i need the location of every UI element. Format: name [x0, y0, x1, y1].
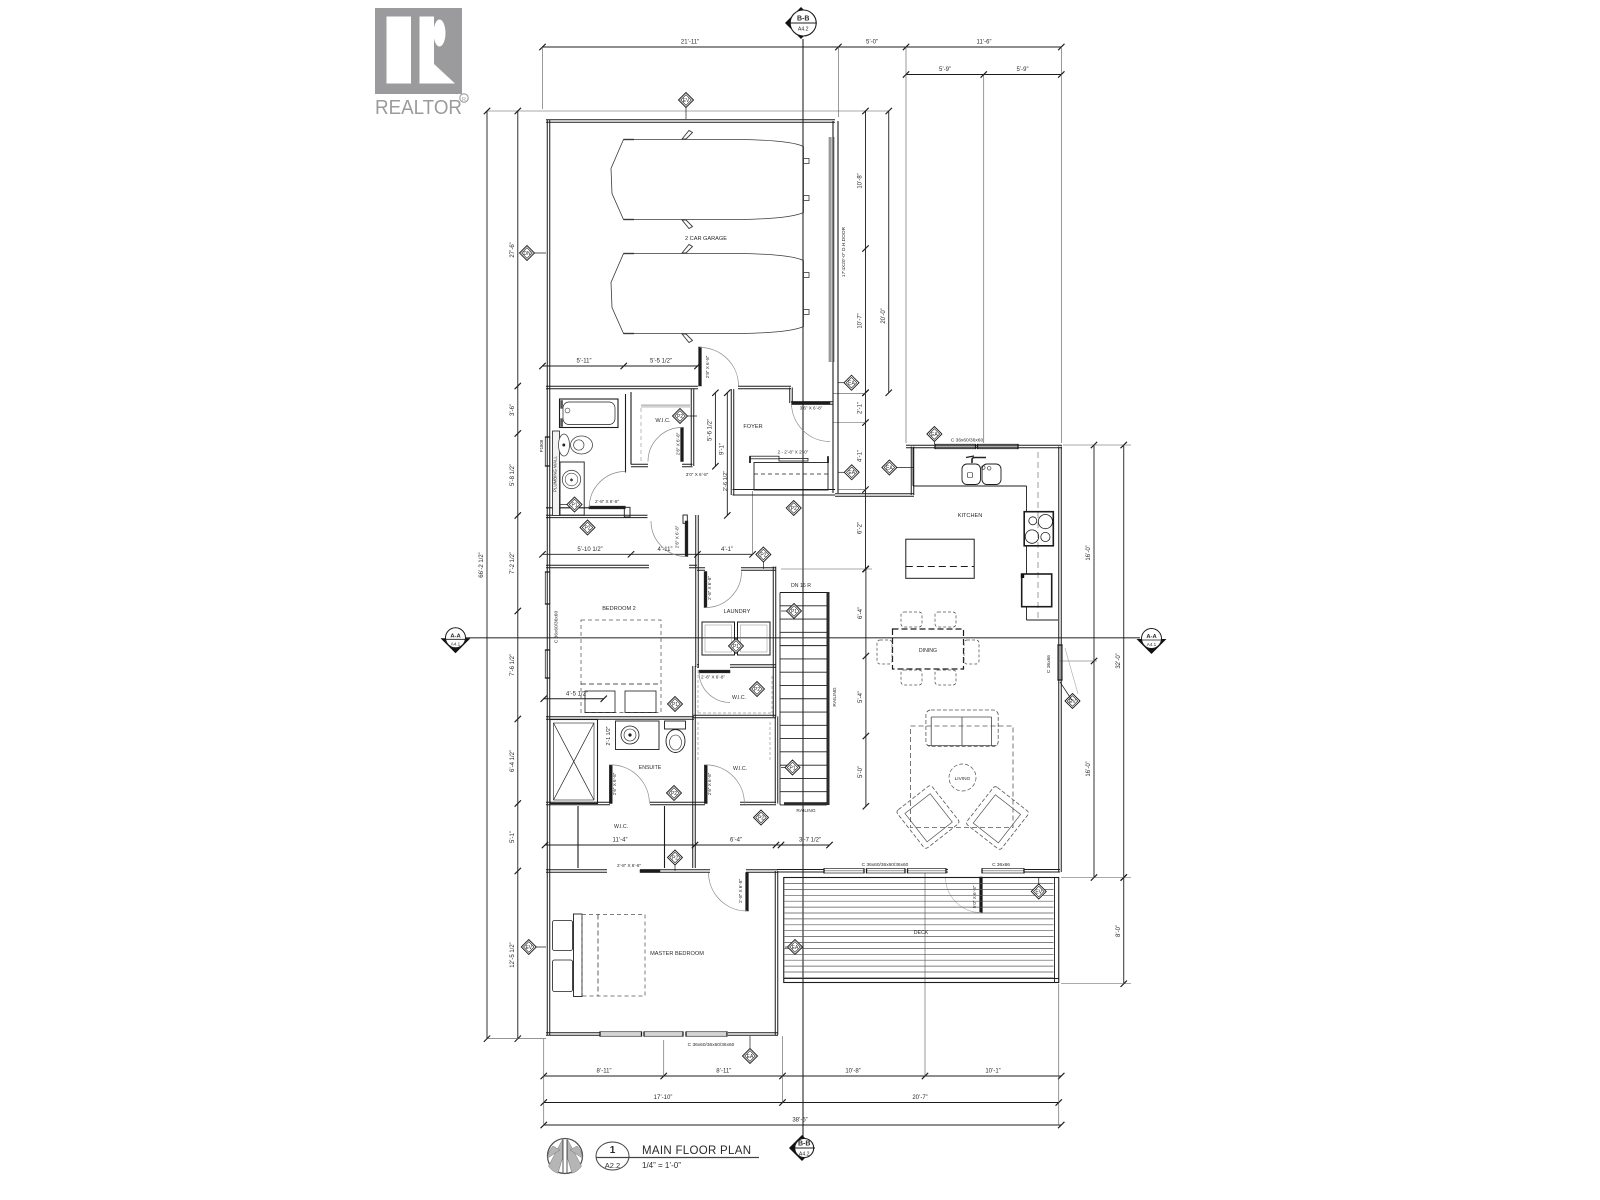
svg-text:EA: EA: [886, 465, 893, 471]
svg-text:ENSUITE: ENSUITE: [639, 765, 662, 771]
svg-text:W.I.C.: W.I.C.: [733, 766, 747, 772]
svg-text:EA: EA: [848, 381, 855, 387]
svg-text:2’6” X 6’-8”: 2’6” X 6’-8”: [707, 772, 712, 795]
svg-text:2’8” X 6’-8”: 2’8” X 6’-8”: [705, 355, 710, 378]
svg-text:5’-5 1/2”: 5’-5 1/2”: [650, 359, 672, 365]
svg-text:1: 1: [610, 1145, 616, 1156]
svg-text:10’-1”: 10’-1”: [985, 1069, 1000, 1075]
svg-text:2’-8” X 6’-8”: 2’-8” X 6’-8”: [595, 499, 619, 504]
svg-text:C 36x60/36x60/36x60: C 36x60/36x60/36x60: [688, 1042, 735, 1048]
svg-text:2’-8” X 6’-8”: 2’-8” X 6’-8”: [701, 675, 725, 680]
svg-text:4’-11”: 4’-11”: [658, 547, 673, 553]
svg-text:EV: EV: [683, 98, 690, 104]
svg-text:5’-10 1/2”: 5’-10 1/2”: [577, 547, 602, 553]
svg-text:B-B: B-B: [798, 1141, 810, 1148]
svg-text:6’-4”: 6’-4”: [730, 838, 742, 844]
svg-text:P1: P1: [791, 609, 797, 615]
svg-text:RAILING: RAILING: [832, 687, 838, 706]
svg-text:7’-6 1/2”: 7’-6 1/2”: [510, 654, 516, 676]
svg-text:11’-4”: 11’-4”: [613, 838, 628, 844]
svg-text:W.I.C.: W.I.C.: [655, 418, 671, 424]
svg-text:C 36x60/36x60/36x60: C 36x60/36x60/36x60: [862, 862, 909, 868]
svg-text:10’-7”: 10’-7”: [858, 313, 864, 328]
svg-text:2’6” X 6’-8”: 2’6” X 6’-8”: [612, 772, 617, 795]
svg-text:2’-8” X 6’-8”: 2’-8” X 6’-8”: [707, 576, 712, 600]
svg-text:C 36x60/36x60: C 36x60/36x60: [951, 438, 984, 444]
svg-text:B-B: B-B: [797, 16, 809, 23]
svg-text:RAILING: RAILING: [796, 808, 815, 814]
svg-text:BEDROOM 2: BEDROOM 2: [602, 606, 636, 612]
svg-text:A4.1: A4.1: [1147, 642, 1157, 647]
svg-text:2’-1”: 2’-1”: [858, 402, 864, 414]
svg-text:2’-6 1/2”: 2’-6 1/2”: [723, 471, 729, 491]
svg-text:3’-6”: 3’-6”: [510, 404, 516, 416]
svg-text:2 CAR GARAGE: 2 CAR GARAGE: [685, 236, 727, 242]
svg-text:2’-1 1/2”: 2’-1 1/2”: [606, 726, 612, 745]
svg-text:EA: EA: [931, 432, 938, 438]
svg-text:P1: P1: [789, 765, 795, 771]
svg-text:66’-2 1/2”: 66’-2 1/2”: [479, 552, 485, 577]
svg-text:3’6” X 6’-8”: 3’6” X 6’-8”: [800, 406, 823, 411]
svg-text:8’-0”: 8’-0”: [1116, 925, 1122, 937]
svg-text:P1: P1: [733, 644, 739, 650]
svg-text:17’-10”: 17’-10”: [654, 1095, 673, 1101]
svg-text:32’-0”: 32’-0”: [1116, 653, 1122, 668]
svg-text:PLUMBING WALL: PLUMBING WALL: [553, 455, 558, 492]
svg-text:5’-4”: 5’-4”: [858, 691, 864, 703]
svg-text:20’-0”: 20’-0”: [881, 308, 887, 323]
svg-text:EV: EV: [525, 945, 532, 951]
svg-text:6’-4”: 6’-4”: [858, 607, 864, 619]
svg-text:3’-7 1/2”: 3’-7 1/2”: [799, 838, 821, 844]
svg-text:5’0” X 6’-8”: 5’0” X 6’-8”: [972, 885, 977, 908]
svg-text:LAUNDRY: LAUNDRY: [724, 609, 751, 615]
svg-text:5’-9”: 5’-9”: [1016, 67, 1028, 73]
svg-text:A-A: A-A: [450, 633, 461, 639]
svg-text:2 - 2’-8” X 2’-0”: 2 - 2’-8” X 2’-0”: [778, 450, 809, 455]
svg-text:C 36x60/36x60: C 36x60/36x60: [554, 611, 560, 644]
svg-text:REALTOR: REALTOR: [375, 96, 462, 119]
svg-text:5’-9”: 5’-9”: [939, 67, 951, 73]
svg-text:2’6” X 6’-8”: 2’6” X 6’-8”: [676, 432, 681, 455]
svg-text:20’-7”: 20’-7”: [912, 1095, 927, 1101]
svg-text:A2.2: A2.2: [605, 1161, 620, 1170]
svg-text:4’-1”: 4’-1”: [858, 450, 864, 462]
svg-text:9’-1”: 9’-1”: [719, 443, 725, 455]
svg-text:C 36x66: C 36x66: [992, 862, 1010, 868]
svg-text:7’-2 1/2”: 7’-2 1/2”: [510, 552, 516, 574]
svg-text:DINING: DINING: [919, 648, 937, 654]
svg-text:EV: EV: [1035, 889, 1042, 895]
svg-text:5’-6 1/2”: 5’-6 1/2”: [707, 419, 713, 441]
svg-text:P2: P2: [584, 525, 590, 531]
svg-text:17’4X20’-0” O.H.DOOR: 17’4X20’-0” O.H.DOOR: [841, 226, 847, 277]
svg-text:P2: P2: [671, 791, 677, 797]
svg-text:A4.2: A4.2: [799, 1152, 810, 1158]
svg-text:8’-11”: 8’-11”: [597, 1069, 612, 1075]
svg-text:5’-8 1/2”: 5’-8 1/2”: [510, 464, 516, 486]
svg-text:1/4” = 1’-0”: 1/4” = 1’-0”: [642, 1161, 681, 1170]
svg-text:27’-6”: 27’-6”: [510, 242, 516, 257]
svg-text:12’-5 1/2”: 12’-5 1/2”: [510, 942, 516, 967]
svg-text:2’6” X 6’-8”: 2’6” X 6’-8”: [675, 525, 680, 548]
svg-text:5’-0”: 5’-0”: [866, 40, 878, 46]
svg-text:EA: EA: [848, 470, 855, 476]
svg-text:W.I.C.: W.I.C.: [732, 695, 746, 701]
svg-text:21’-11”: 21’-11”: [681, 40, 699, 46]
svg-text:10’-8”: 10’-8”: [845, 1069, 860, 1075]
svg-text:P2: P2: [758, 815, 764, 821]
svg-text:3’0” X 6’-8”: 3’0” X 6’-8”: [686, 472, 709, 477]
svg-text:P2: P2: [791, 506, 797, 512]
svg-text:5’-0”: 5’-0”: [858, 766, 864, 778]
svg-text:2’-8” X 6’-8”: 2’-8” X 6’-8”: [617, 863, 641, 868]
svg-text:MASTER BEDROOM: MASTER BEDROOM: [650, 951, 704, 957]
svg-text:✱: ✱: [570, 478, 574, 483]
svg-text:C 36x66: C 36x66: [1046, 655, 1052, 673]
svg-text:6’-4 1/2”: 6’-4 1/2”: [510, 750, 516, 772]
svg-text:P1808: P1808: [539, 439, 544, 452]
svg-text:R: R: [462, 97, 466, 103]
svg-text:A-A: A-A: [1146, 634, 1157, 640]
svg-text:10’-8”: 10’-8”: [858, 173, 864, 188]
svg-text:KITCHEN: KITCHEN: [958, 513, 983, 519]
svg-text:FOYER: FOYER: [743, 424, 762, 430]
svg-text:EA: EA: [792, 945, 799, 951]
svg-text:EA: EA: [747, 1054, 754, 1060]
svg-text:5’-1”: 5’-1”: [510, 831, 516, 843]
svg-text:A4.2: A4.2: [798, 27, 809, 33]
svg-text:MAIN FLOOR PLAN: MAIN FLOOR PLAN: [642, 1145, 751, 1157]
svg-text:LIVING: LIVING: [955, 776, 971, 782]
svg-text:5’-11”: 5’-11”: [577, 359, 592, 365]
svg-text:16’-0”: 16’-0”: [1086, 761, 1092, 776]
svg-text:DECK: DECK: [914, 930, 929, 936]
svg-text:EV: EV: [1069, 699, 1076, 705]
svg-text:4’-1”: 4’-1”: [721, 547, 733, 553]
svg-text:16’-0”: 16’-0”: [1086, 545, 1092, 560]
svg-text:11’-6”: 11’-6”: [977, 40, 992, 46]
svg-text:P1: P1: [672, 702, 678, 708]
svg-text:P1: P1: [571, 502, 577, 508]
svg-text:P2: P2: [677, 414, 683, 420]
svg-text:W.I.C.: W.I.C.: [614, 824, 628, 830]
svg-text:DN: DN: [523, 251, 531, 257]
svg-text:8’-11”: 8’-11”: [716, 1069, 731, 1075]
svg-text:P2: P2: [754, 687, 760, 693]
svg-text:2’-8” X 6’-8”: 2’-8” X 6’-8”: [738, 879, 743, 903]
svg-text:P2: P2: [760, 552, 766, 558]
svg-text:6’-2”: 6’-2”: [858, 522, 864, 534]
svg-text:P2: P2: [672, 855, 678, 861]
svg-text:38’-5”: 38’-5”: [792, 1118, 807, 1124]
svg-text:DN 16 R: DN 16 R: [791, 583, 811, 589]
svg-text:A4.1: A4.1: [451, 641, 461, 646]
